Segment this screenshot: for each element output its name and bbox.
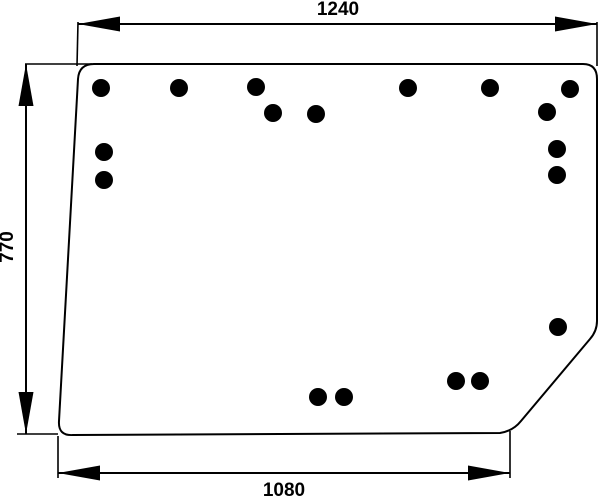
mounting-hole bbox=[309, 388, 327, 406]
mounting-hole bbox=[92, 79, 110, 97]
dimension-top-width-extension-line bbox=[77, 22, 78, 66]
mounting-hole bbox=[471, 372, 489, 390]
dimension-bottom-width-label: 1080 bbox=[263, 480, 305, 498]
mounting-hole bbox=[247, 78, 265, 96]
glass-panel-drawing: 12407701080 bbox=[0, 0, 600, 498]
mounting-hole bbox=[481, 79, 499, 97]
glass-panel-outline bbox=[59, 64, 597, 435]
dimension-left-height-label: 770 bbox=[0, 231, 18, 263]
dimension-bottom-width-arrowhead-right bbox=[468, 466, 510, 481]
dimension-left-height-arrowhead-bottom bbox=[19, 392, 34, 434]
dimension-top-width-arrowhead-left bbox=[78, 17, 120, 32]
dimension-top-width-arrowhead-right bbox=[555, 17, 597, 32]
mounting-hole bbox=[307, 105, 325, 123]
mounting-hole bbox=[95, 143, 113, 161]
mounting-hole bbox=[399, 79, 417, 97]
mounting-hole bbox=[335, 388, 353, 406]
dimension-top-width-label: 1240 bbox=[317, 0, 359, 20]
mounting-hole bbox=[538, 103, 556, 121]
mounting-hole bbox=[95, 171, 113, 189]
mounting-hole bbox=[549, 318, 567, 336]
mounting-hole bbox=[264, 104, 282, 122]
mounting-hole bbox=[548, 140, 566, 158]
dimension-left-height-arrowhead-top bbox=[19, 64, 34, 106]
mounting-hole bbox=[170, 79, 188, 97]
mounting-hole bbox=[447, 372, 465, 390]
dimension-bottom-width-arrowhead-left bbox=[58, 466, 100, 481]
mounting-hole bbox=[548, 166, 566, 184]
mounting-hole bbox=[561, 80, 579, 98]
technical-drawing-page: 12407701080 bbox=[0, 0, 600, 498]
